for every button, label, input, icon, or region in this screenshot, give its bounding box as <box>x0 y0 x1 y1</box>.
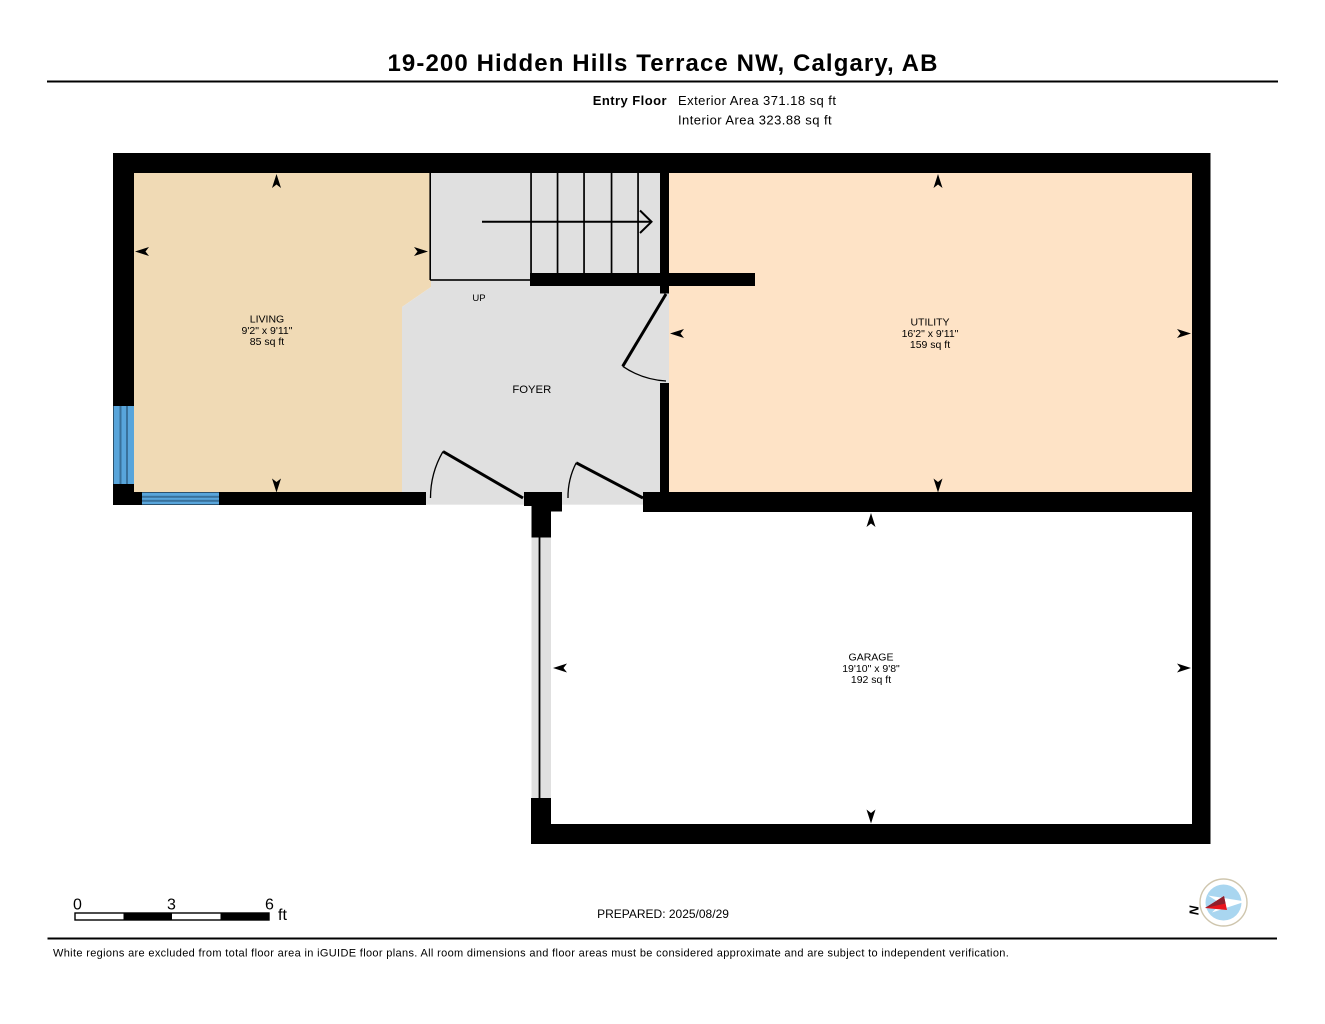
svg-text:FOYER: FOYER <box>512 384 551 396</box>
svg-text:Interior Area 323.88 sq ft: Interior Area 323.88 sq ft <box>678 113 832 128</box>
svg-text:Exterior Area 371.18 sq ft: Exterior Area 371.18 sq ft <box>678 93 836 108</box>
svg-text:19-200 Hidden Hills Terrace NW: 19-200 Hidden Hills Terrace NW, Calgary,… <box>387 50 938 77</box>
svg-text:3: 3 <box>167 897 176 914</box>
svg-text:ft: ft <box>278 907 287 924</box>
svg-text:159 sq ft: 159 sq ft <box>910 339 950 351</box>
svg-text:UTILITY: UTILITY <box>910 317 949 329</box>
svg-text:LIVING: LIVING <box>250 314 284 326</box>
svg-text:White regions are excluded fro: White regions are excluded from total fl… <box>53 948 1009 960</box>
svg-text:Entry Floor: Entry Floor <box>593 93 667 108</box>
svg-text:UP: UP <box>472 293 485 304</box>
svg-text:192 sq ft: 192 sq ft <box>851 674 891 686</box>
svg-text:PREPARED: 2025/08/29: PREPARED: 2025/08/29 <box>597 907 729 921</box>
svg-text:GARAGE: GARAGE <box>849 652 894 664</box>
svg-text:0: 0 <box>73 897 82 914</box>
svg-text:6: 6 <box>265 897 274 914</box>
svg-text:85 sq ft: 85 sq ft <box>250 336 285 348</box>
svg-text:N: N <box>1187 905 1202 915</box>
